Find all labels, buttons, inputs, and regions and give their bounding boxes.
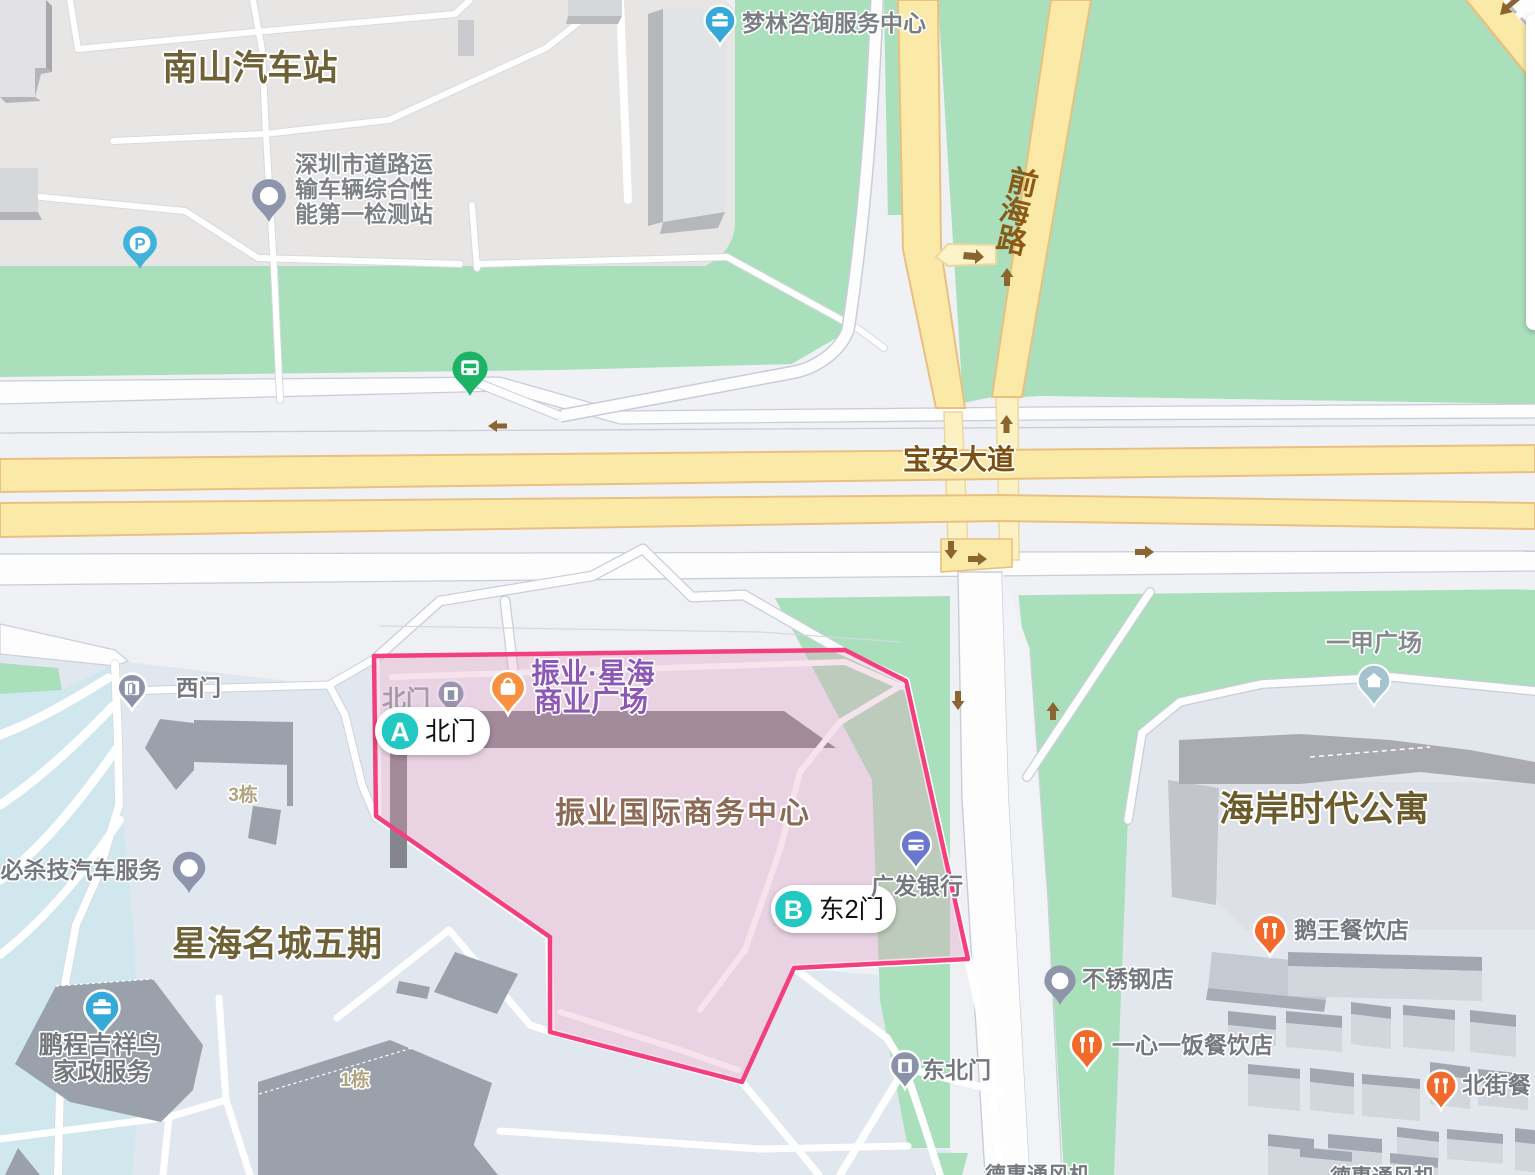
svg-text:一甲广场: 一甲广场	[1326, 629, 1422, 657]
svg-text:梦林咨询服务中心: 梦林咨询服务中心	[742, 10, 926, 36]
svg-text:北门: 北门	[425, 718, 476, 746]
svg-text:星海名城五期: 星海名城五期	[172, 925, 382, 964]
svg-text:不锈钢店: 不锈钢店	[1082, 966, 1174, 992]
svg-text:1栋: 1栋	[340, 1068, 370, 1091]
svg-text:一心一饭餐饮店: 一心一饭餐饮店	[1112, 1032, 1273, 1058]
svg-text:西门: 西门	[176, 675, 221, 701]
svg-text:P: P	[134, 235, 145, 254]
svg-text:海岸时代公寓: 海岸时代公寓	[1219, 790, 1429, 829]
svg-text:家政服务: 家政服务	[53, 1057, 151, 1086]
svg-text:德惠通风机: 德惠通风机	[985, 1163, 1090, 1175]
svg-text:德惠通风机: 德惠通风机	[1330, 1165, 1435, 1175]
svg-text:广发银行: 广发银行	[871, 873, 963, 899]
svg-text:A: A	[390, 717, 410, 747]
svg-text:宝安大道: 宝安大道	[903, 443, 1015, 475]
svg-text:北街餐: 北街餐	[1462, 1072, 1532, 1098]
svg-text:振业国际商务中心: 振业国际商务中心	[555, 797, 811, 830]
svg-text:3栋: 3栋	[228, 783, 258, 806]
svg-text:鹅王餐饮店: 鹅王餐饮店	[1294, 917, 1409, 943]
svg-text:鹏程吉祥鸟: 鹏程吉祥鸟	[39, 1030, 162, 1059]
svg-text:东2门: 东2门	[819, 896, 884, 924]
svg-text:B: B	[784, 895, 804, 925]
svg-text:能第一检测站: 能第一检测站	[295, 201, 433, 227]
svg-text:东北门: 东北门	[922, 1057, 991, 1083]
svg-text:商业广场: 商业广场	[534, 686, 648, 718]
svg-text:必杀技汽车服务: 必杀技汽车服务	[1, 857, 163, 883]
svg-text:南山汽车站: 南山汽车站	[162, 49, 337, 88]
svg-text:深圳市道路运: 深圳市道路运	[295, 151, 433, 177]
svg-text:输车辆综合性: 输车辆综合性	[295, 176, 433, 202]
